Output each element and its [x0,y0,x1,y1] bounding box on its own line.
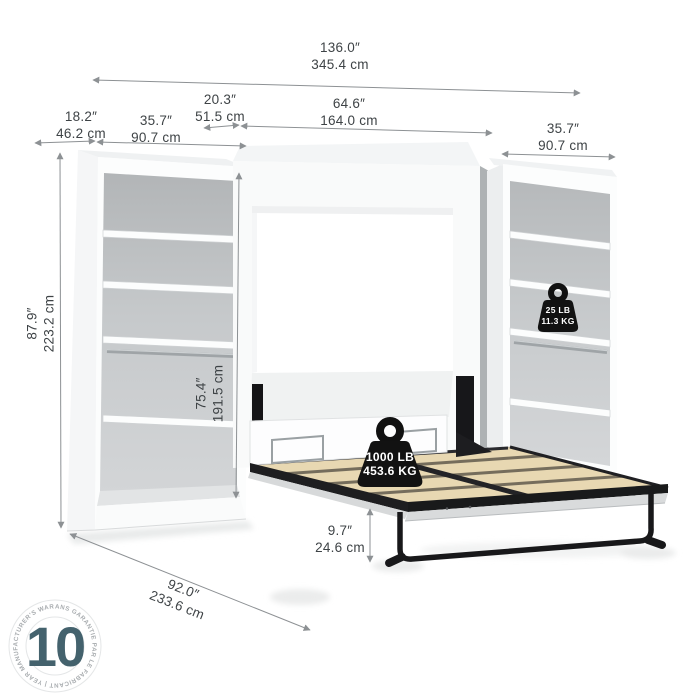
cabinet-opening [252,206,453,373]
dim-overall-width-label: 136.0″ 345.4 cm [285,40,395,73]
screw [469,506,472,509]
dim-overall-height-cm: 223.2 cm [41,269,58,379]
dim-bed-frame-height-label: 9.7″ 24.6 cm [285,523,395,556]
dim-interior-height-cm: 191.5 cm [210,339,227,449]
right-bookcase-side-panel [487,164,503,452]
dim-cabinet-depth-in: 20.3″ [165,92,275,109]
dim-overall-height-label: 87.9″ 223.2 cm [25,269,58,379]
dim-left-unit-width-cm: 90.7 cm [101,130,211,147]
dim-bed-width-cm: 164.0 cm [294,113,404,130]
bed-capacity-lb: 1000 LB [366,450,414,464]
dim-right-unit-width-in: 35.7″ [508,121,618,138]
dim-interior-height-label: 75.4″ 191.5 cm [194,339,227,449]
dim-overall-height-in: 87.9″ [25,269,42,379]
screw [446,507,449,510]
dim-bed-frame-height-cm: 24.6 cm [285,540,395,557]
dim-bed-width-in: 64.6″ [294,96,404,113]
dim-cabinet-depth-cm: 51.5 cm [165,109,275,126]
dim-right-unit-width-label: 35.7″ 90.7 cm [508,121,618,154]
dim-right-unit-width-cm: 90.7 cm [508,138,618,155]
dim-bed-frame-height-in: 9.7″ [285,523,395,540]
shelf-capacity-kg: 11.3 KG [541,316,574,326]
bed-foot-right [648,540,662,545]
cabinet-opening-shadow-left [252,206,257,373]
dim-overall-width-cm: 345.4 cm [285,57,395,74]
left-bookcase-side-panel [67,150,98,531]
shelf-capacity-lb: 25 LB [546,305,571,315]
product-diagram: 25 LB 11.3 KG 1000 LB 453.6 KG ANS GARAN… [0,0,700,700]
dim-line-right-unit-width [502,154,615,157]
dim-bed-width-label: 64.6″ 164.0 cm [294,96,404,129]
bed-capacity-kg: 453.6 KG [363,464,417,478]
dim-interior-height-in: 75.4″ [194,339,211,449]
warranty-years: 10 [26,615,84,678]
bed-foot-left [389,557,402,563]
dim-cabinet-depth-label: 20.3″ 51.5 cm [165,92,275,125]
dim-overall-width-in: 136.0″ [285,40,395,57]
dim-line-overall-height [60,153,61,528]
cabinet-sill [250,371,453,422]
